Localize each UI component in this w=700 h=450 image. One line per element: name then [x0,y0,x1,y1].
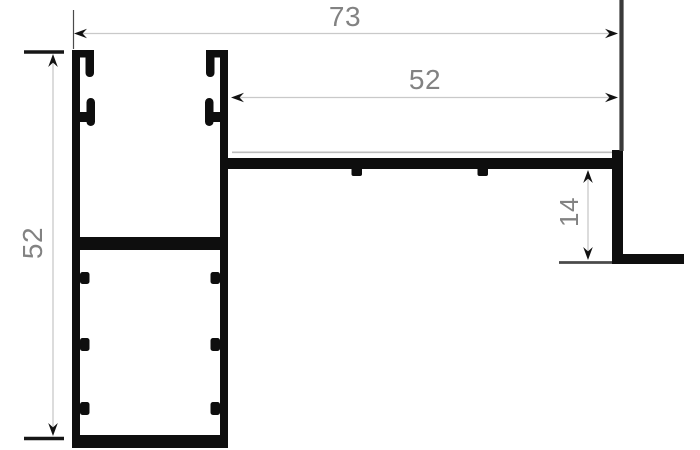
right-foot [612,254,684,264]
box-tooth-right-1 [211,272,221,284]
arm-tooth-1 [352,166,363,176]
box-tooth-left-2 [80,338,90,351]
box-tooth-right-2 [211,338,221,351]
right-drop-bar [612,150,623,263]
right-post-upper-hook [206,50,215,77]
label-arm-width: 52 [409,64,441,95]
left-post-lower-hook-thumb [87,98,96,126]
aluminum-profile-drawing: 73 52 52 14 [0,0,700,450]
right-post-lower-hook-thumb [205,98,214,126]
technical-drawing-canvas: 73 52 52 14 [0,0,700,450]
bottom-bar [72,435,228,448]
box-tooth-right-3 [211,402,221,415]
box-tooth-left-1 [80,272,90,284]
left-post-upper-hook [86,50,95,77]
crossbar [72,237,228,250]
label-left-height: 52 [17,227,48,259]
arm-tooth-2 [478,166,489,176]
horizontal-arm [228,158,612,169]
label-total-width: 73 [329,1,361,32]
profile-shape [72,50,684,448]
dimension-labels: 73 52 52 14 [17,1,584,259]
label-end-drop: 14 [554,197,584,227]
box-tooth-left-3 [80,402,90,415]
